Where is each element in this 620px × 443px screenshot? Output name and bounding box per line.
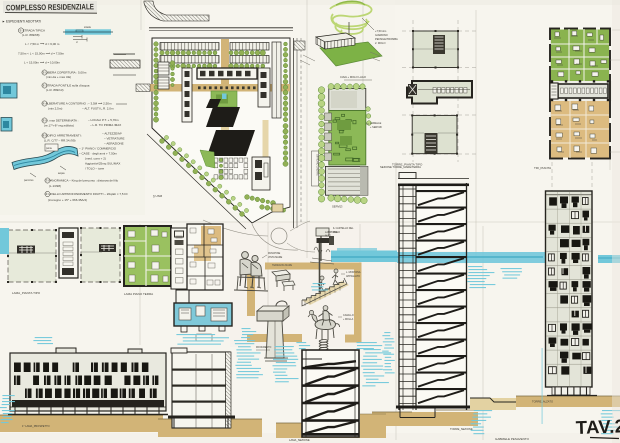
svg-text:(L.R. 899/13): (L.R. 899/13) [46,88,64,92]
svg-text:2. MOLO: 2. MOLO [375,41,386,45]
svg-text:(min 2,5m): (min 2,5m) [48,107,62,111]
svg-text:(L.13/98): (L.13/98) [49,184,61,188]
svg-text:⑤ H. max DETERMINATA :: ⑤ H. max DETERMINATA : [42,119,79,123]
svg-text:GIARDINO: GIARDINO [375,33,388,37]
svg-text:(L.R. C/77 – RR.34./99): (L.R. C/77 – RR.34./99) [44,139,76,143]
svg-text:GIARDINO LINEARE: GIARDINO LINEARE [316,154,319,176]
svg-text:(min.da + max UE): (min.da + max UE) [46,75,71,79]
svg-text:LAMA PIANO TERRA: LAMA PIANO TERRA [124,292,153,296]
svg-text:CAVALLO: CAVALLO [343,314,354,317]
svg-text:– CASE · degli anni + 7,50m: – CASE · degli anni + 7,50m [79,152,117,156]
svg-text:(ins.legno + 15° + 666.35A/4): (ins.legno + 15° + 666.35A/4) [48,198,87,202]
svg-text:MONUMENTO: MONUMENTO [256,347,271,349]
svg-text:ALTO: ALTO [325,235,331,238]
svg-text:LAMA_PIANTA TIPO: LAMA_PIANTA TIPO [12,291,41,295]
svg-text:acqua: acqua [58,172,65,175]
svg-text:(med. cons + 2): (med. cons + 2) [85,157,106,161]
svg-text:SERVIZI: SERVIZI [332,205,343,209]
svg-text:7,50m < L < 15,00m ⟶ d = 7,5: 7,50m < L < 15,00m ⟶ d = 7,50m [18,52,65,56]
svg-text:⑥ EDIFICI ARRETRAMENTI :: ⑥ EDIFICI ARRETRAMENTI : [42,134,82,138]
svg-text:TORRE_SEZIONE: TORRE_SEZIONE [450,427,473,431]
svg-text:VISTA MARE: VISTA MARE [268,256,283,259]
svg-text:+ SERVIZI: + SERVIZI [370,126,382,129]
svg-text:– LOCALI P.T. + 5,70m: – LOCALI P.T. + 5,70m [88,118,119,122]
svg-text:GABRIELE PESAVENTO: GABRIELE PESAVENTO [495,437,530,441]
svg-text:Aggiuntivi/25mq SUL/MAX: Aggiuntivi/25mq SUL/MAX [85,162,120,166]
svg-text:APPIGLIATO: APPIGLIATO [346,275,360,278]
svg-text:TRI_PIANTA: TRI_PIANTA [534,166,551,170]
svg-text:1° LAMA_PROSPETTO: 1° LAMA_PROSPETTO [22,424,50,428]
svg-text:CAVA + MOLO LAGO: CAVA + MOLO LAGO [340,75,366,79]
svg-text:IL CARTELLO DEL: IL CARTELLO DEL [333,227,354,230]
svg-text:percorso: percorso [24,179,34,182]
svg-text:(L.R. 899/68): (L.R. 899/68) [22,33,40,37]
svg-text:– 3,5M ⟶ 2,50m: – 3,5M ⟶ 2,50m [88,102,112,106]
svg-text:strada: strada [84,26,91,29]
svg-text:TERRAZZA MARE: TERRAZZA MARE [272,264,292,267]
svg-text:TAV.2: TAV.2 [575,415,620,438]
svg-text:– 1° PIANO / COMMERCIO: – 1° PIANO / COMMERCIO [79,147,117,151]
svg-text:– L.R. TO PRIMA /MAX: – L.R. TO PRIMA /MAX [90,123,121,127]
svg-text:⑧ LIVELLO APPROFONDIMENTO FRU: ⑧ LIVELLO APPROFONDIMENTO FRUTTI – 20q/a… [45,192,128,196]
svg-text:COMPLESSO RESIDENZIALE: COMPLESSO RESIDENZIALE [6,2,95,12]
svg-text:L < 15,00m ⟶ d = 10,00m: L < 15,00m ⟶ d = 10,00m [24,61,61,65]
svg-text:⑦ PANORAMICA – King del perco: ⑦ PANORAMICA – King del percorso : dista… [45,179,118,183]
svg-text:ponte: ponte [46,147,53,150]
svg-text:PANCHINE: PANCHINE [268,252,281,255]
svg-text:– ALT. FUSTI L.R. 2,0m: – ALT. FUSTI L.R. 2,0m [82,107,114,111]
svg-text:LAMELLE: LAMELLE [370,122,382,125]
svg-text:+7,50 slm: +7,50 slm [375,29,386,33]
svg-text:② LIBERA COPERTURA : 5,00m: ② LIBERA COPERTURA : 5,00m [42,71,87,75]
svg-text:SEZIONE TORRE_MARE/TERRA: SEZIONE TORRE_MARE/TERRA [380,165,421,169]
svg-text:④ ALBERATURE A CONTORNO :: ④ ALBERATURE A CONTORNO : [42,102,88,106]
svg-text:► ESPEDIENTI ADOTTATI: ► ESPEDIENTI ADOTTATI [2,20,41,24]
svg-text:– VETRATURE: – VETRATURE [104,137,124,141]
svg-text:(re.17°+8° reg.edilizia): (re.17°+8° reg.edilizia) [44,124,74,128]
svg-text:– ALTEZZE/M²: – ALTEZZE/M² [102,132,122,136]
svg-text:§ USM: § USM [153,194,163,198]
svg-text:PENSILE/TROMBA: PENSILE/TROMBA [375,37,398,41]
svg-text:LAMA_SEZIONE: LAMA_SEZIONE [289,438,310,442]
svg-text:– AERAZIONE: – AERAZIONE [104,142,124,146]
svg-text:L < 7,50 m ⟶ d = 6,00 m: L < 7,50 m ⟶ d = 6,00 m [25,42,60,46]
svg-text:/ TOLO – torre: / TOLO – torre [85,167,105,171]
svg-text:L. MONTANA: L. MONTANA [346,271,361,274]
svg-text:③ STRADA PONTILE sulla d'acq: ③ STRADA PONTILE sulla d'acqua [42,84,90,88]
svg-text:+ MOLLA: + MOLLA [343,318,354,321]
